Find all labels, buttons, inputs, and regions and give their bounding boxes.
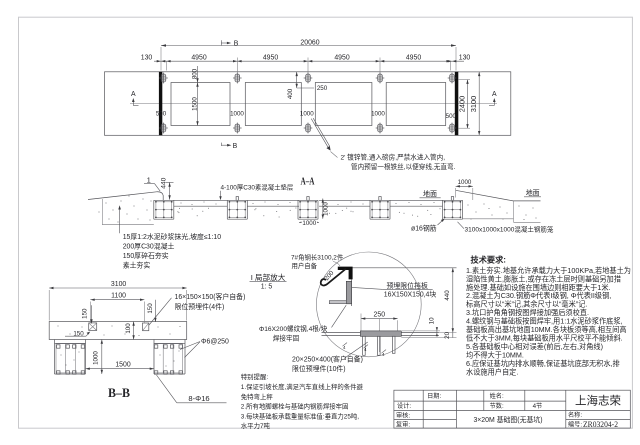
svg-text:7#角钢长3100,2件: 7#角钢长3100,2件	[291, 252, 344, 261]
svg-text:4950: 4950	[191, 55, 206, 62]
svg-text:130: 130	[141, 55, 153, 62]
svg-text:1500: 1500	[191, 97, 198, 111]
svg-text:1000: 1000	[92, 351, 99, 365]
svg-text:技术要求:: 技术要求:	[471, 255, 506, 265]
svg-text:1000: 1000	[458, 179, 472, 186]
svg-text:16×150×150(客户自备): 16×150×150(客户自备)	[175, 292, 246, 301]
svg-text:1000: 1000	[302, 220, 316, 227]
svg-text:B–B: B–B	[108, 385, 130, 400]
svg-text:焊接牢固: 焊接牢固	[273, 334, 300, 343]
svg-text:限位预埋件(10件): 限位预埋件(10件)	[292, 364, 346, 373]
svg-text:1100: 1100	[111, 293, 126, 300]
svg-text:地面: 地面	[526, 188, 540, 197]
svg-text:4950: 4950	[334, 55, 349, 62]
svg-text:10: 10	[428, 317, 435, 324]
svg-text:3.每块基础板承载重量标准值:垂直力25吨,: 3.每块基础板承载重量标准值:垂直力25吨,	[241, 411, 359, 420]
svg-text:250: 250	[317, 85, 328, 92]
svg-text:2400: 2400	[457, 96, 466, 112]
svg-text:姓名:: 姓名:	[490, 392, 504, 400]
svg-text:2.所有地脚螺栓与基础内钢筋焊接牢固: 2.所有地脚螺栓与基础内钢筋焊接牢固	[241, 402, 349, 411]
svg-text:1000: 1000	[371, 111, 385, 118]
svg-text:B: B	[234, 41, 239, 48]
svg-text:用户自备: 用户自备	[292, 261, 318, 270]
svg-text:3100x1000x1000混凝土钢筋笼: 3100x1000x1000混凝土钢筋笼	[465, 224, 554, 233]
svg-text:复审:: 复审:	[396, 420, 410, 428]
svg-text:ø16钢筋: ø16钢筋	[411, 223, 437, 232]
svg-text:上海志荣: 上海志荣	[575, 393, 621, 407]
svg-text:4950: 4950	[406, 55, 421, 62]
svg-text:B: B	[233, 143, 238, 150]
svg-text:4节: 4节	[533, 402, 543, 410]
svg-text:4950: 4950	[263, 55, 278, 62]
svg-text:130: 130	[459, 55, 471, 62]
svg-text:800: 800	[191, 68, 198, 79]
svg-text:150: 150	[81, 308, 88, 319]
svg-text:1.保证引坡长度,满足汽车直线上秤的条件避: 1.保证引坡长度,满足汽车直线上秤的条件避	[241, 382, 364, 391]
svg-text:特别提醒:: 特别提醒:	[241, 372, 269, 381]
svg-text:2' 镀锌管,通入磅房,严禁水进入管内,: 2' 镀锌管,通入磅房,严禁水进入管内,	[341, 153, 446, 162]
svg-text:1000: 1000	[323, 202, 330, 216]
svg-text:20×250×400(客户自备): 20×250×400(客户自备)	[292, 354, 363, 363]
svg-text:3100: 3100	[469, 96, 478, 112]
svg-text:150厚碎石夯实: 150厚碎石夯实	[123, 251, 169, 260]
svg-text:1000: 1000	[300, 111, 314, 118]
svg-text:400: 400	[287, 88, 294, 99]
svg-text:Φ6@250: Φ6@250	[201, 339, 229, 346]
svg-text:1500: 1500	[115, 362, 130, 369]
svg-text:管内预留一根铁丝,以便穿线,无直弯.: 管内预留一根铁丝,以便穿线,无直弯.	[351, 162, 456, 171]
svg-text:16X150X150,4块: 16X150X150,4块	[384, 290, 437, 299]
svg-text:A: A	[492, 91, 497, 98]
svg-text:素土夯实: 素土夯实	[123, 260, 151, 269]
svg-text:20: 20	[444, 331, 451, 338]
svg-text:限位预埋件(4件): 限位预埋件(4件)	[175, 302, 225, 311]
svg-text:4-100厚C30素混凝土垫层: 4-100厚C30素混凝土垫层	[221, 183, 294, 192]
svg-text:名称:: 名称:	[568, 411, 582, 419]
svg-text:地面: 地面	[423, 189, 437, 198]
svg-text:250: 250	[374, 312, 386, 319]
svg-text:免特弯上秤: 免特弯上秤	[241, 392, 274, 401]
svg-text:20060: 20060	[300, 39, 319, 46]
svg-text:水平力7吨: 水平力7吨	[241, 421, 271, 430]
svg-text:设计:: 设计:	[397, 402, 411, 410]
svg-text:440: 440	[160, 177, 167, 188]
svg-text:200厚C30混凝土: 200厚C30混凝土	[123, 242, 175, 251]
svg-text:3100: 3100	[111, 281, 126, 288]
svg-text:预埋限位挡板: 预埋限位挡板	[387, 281, 428, 290]
svg-text:编号:: 编号:	[568, 421, 582, 429]
svg-text:ZR03204-2: ZR03204-2	[583, 419, 618, 429]
svg-text:500: 500	[446, 113, 457, 120]
svg-text:3×20M 基础图(无基坑): 3×20M 基础图(无基坑)	[473, 415, 542, 424]
svg-text:节数:: 节数:	[490, 402, 504, 410]
svg-text:A: A	[131, 91, 136, 98]
svg-text:水设施用户自定.: 水设施用户自定.	[466, 367, 518, 376]
svg-text:500: 500	[156, 111, 167, 118]
svg-text:15厚1:2水泥砂浆抹光,坡度≤1:10: 15厚1:2水泥砂浆抹光,坡度≤1:10	[123, 232, 222, 241]
svg-text:审核:: 审核:	[396, 411, 410, 419]
svg-text:1: 1	[147, 176, 151, 185]
svg-text:A–A: A–A	[301, 176, 315, 187]
svg-text:1000: 1000	[230, 111, 244, 118]
svg-text:100: 100	[125, 323, 132, 334]
svg-text:150: 150	[147, 303, 154, 314]
svg-text:1: 5: 1: 5	[261, 284, 273, 291]
svg-text:I 局部放大: I 局部放大	[251, 272, 286, 282]
svg-text:日期:: 日期:	[427, 392, 441, 400]
svg-text:Φ16X200螺纹钢,4根/块: Φ16X200螺纹钢,4根/块	[259, 324, 328, 333]
svg-text:440: 440	[444, 290, 451, 301]
svg-text:8-Φ16: 8-Φ16	[188, 394, 209, 403]
